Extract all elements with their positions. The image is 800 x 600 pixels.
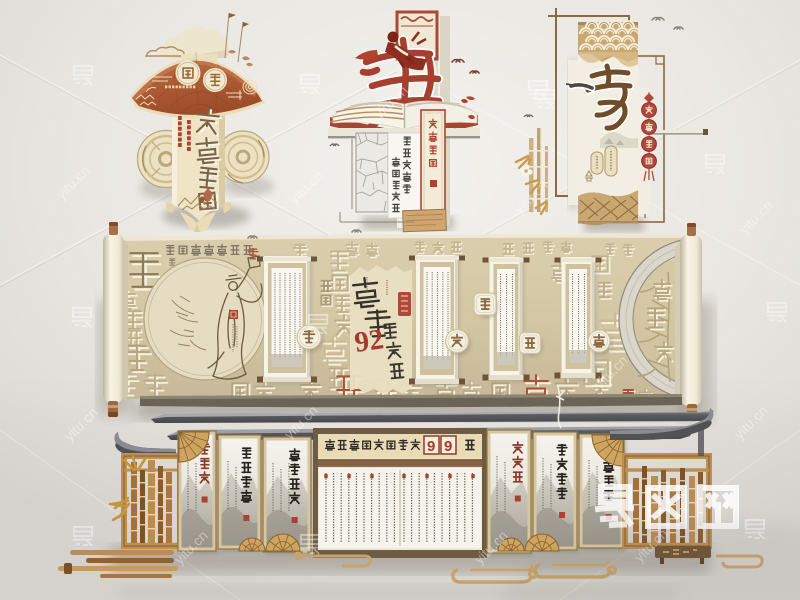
svg-text:92: 92 <box>353 323 386 359</box>
svg-text:9: 9 <box>427 438 435 455</box>
svg-text:9: 9 <box>444 438 452 455</box>
